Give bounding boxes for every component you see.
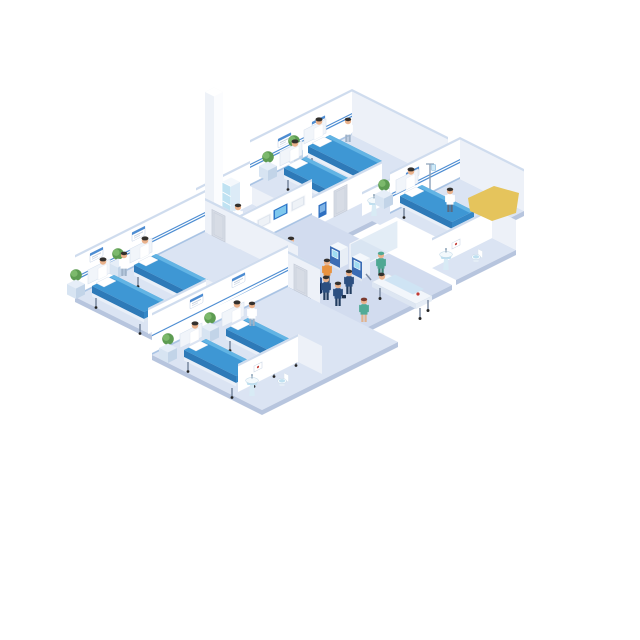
tall-column — [205, 88, 223, 214]
hospital-illustration-canvas — [0, 0, 640, 640]
carried-bag — [342, 295, 346, 298]
hospital-floor-illustration — [0, 0, 640, 640]
